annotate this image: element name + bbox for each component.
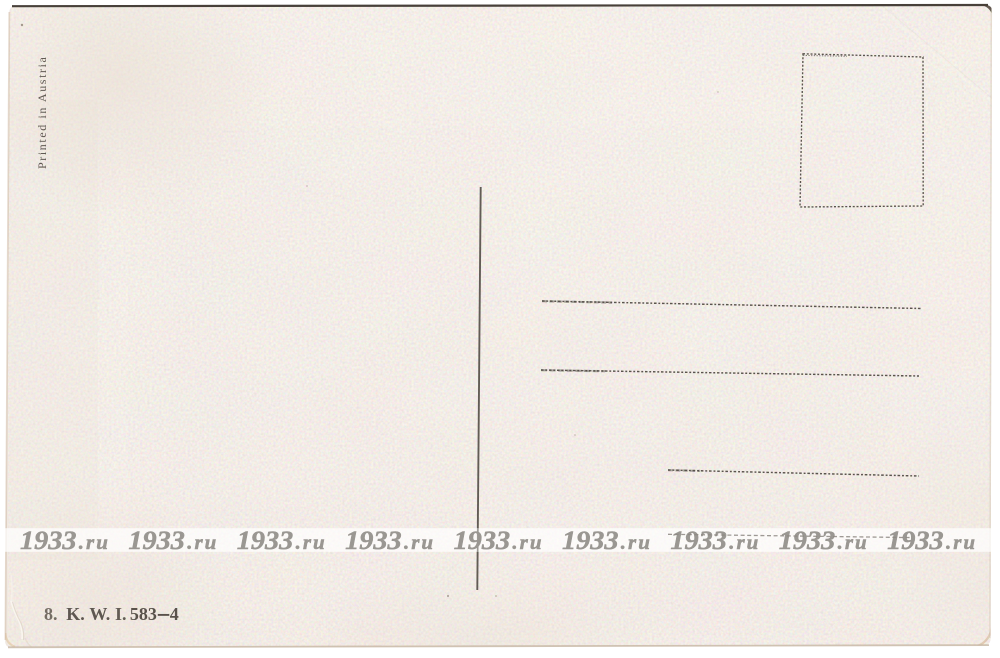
svg-text:W.: W. [89,604,110,624]
svg-text:I.: I. [115,604,127,624]
svg-text:.ru: .ru [621,530,652,554]
svg-text:.ru: .ru [838,530,869,554]
svg-text:1933: 1933 [670,525,727,555]
svg-text:4: 4 [170,604,179,624]
svg-text:.ru: .ru [404,530,435,554]
svg-text:1933: 1933 [454,525,511,555]
svg-text:.ru: .ru [512,530,543,554]
svg-text:.ru: .ru [946,530,977,554]
svg-text:.ru: .ru [296,530,327,554]
svg-text:1933: 1933 [562,525,619,555]
svg-text:.ru: .ru [729,530,760,554]
svg-text:1933: 1933 [20,525,77,555]
svg-text:1933: 1933 [887,525,944,555]
svg-text:K.: K. [66,604,85,624]
svg-text:1933: 1933 [237,525,294,555]
svg-text:1933: 1933 [779,525,836,555]
svg-text:.ru: .ru [79,530,110,554]
svg-text:1933: 1933 [128,525,185,555]
svg-text:Printed in Austria: Printed in Austria [35,56,49,169]
svg-text:8.: 8. [44,604,58,624]
svg-text:583: 583 [130,604,157,624]
svg-text:1933: 1933 [345,525,402,555]
svg-text:.ru: .ru [187,530,218,554]
